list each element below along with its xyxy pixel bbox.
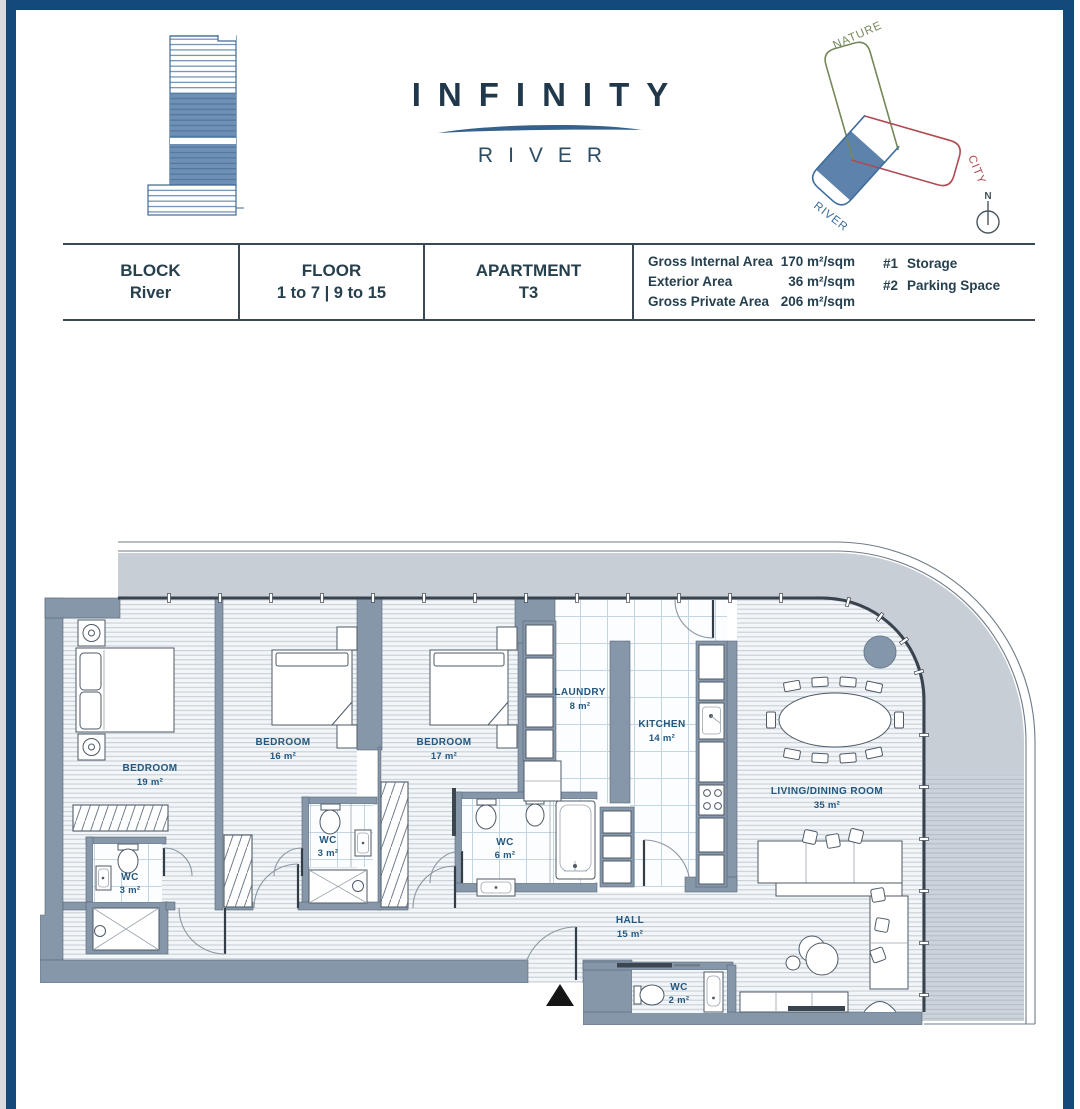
room-area-hall: 15 m² <box>617 929 643 940</box>
area-value: 36 m²/sqm <box>788 272 855 292</box>
column <box>864 636 896 668</box>
info-cell-floor: FLOOR 1 to 7 | 9 to 15 <box>238 245 423 319</box>
room-area-wc1: 3 m² <box>120 885 141 896</box>
room-area-bedroom2: 16 m² <box>270 751 296 762</box>
wing-label-city: CITY <box>965 154 987 186</box>
area-label: Exterior Area <box>648 272 732 292</box>
wc-fixtures <box>93 844 162 950</box>
room-area-kitchen: 14 m² <box>649 733 675 744</box>
laundry-cabinets <box>523 621 561 801</box>
block-label: BLOCK <box>120 261 180 281</box>
north-compass-icon: N <box>977 191 999 233</box>
info-cell-extras: #1Storage #2Parking Space <box>867 245 1035 319</box>
wc-fixtures <box>452 788 595 896</box>
tower-logo-icon <box>140 33 250 218</box>
area-value: 170 m²/sqm <box>781 252 855 272</box>
floor-plan: BEDROOM 19 m² BEDROOM 16 m² BEDROOM 17 m… <box>40 535 1040 1065</box>
info-table: BLOCK River FLOOR 1 to 7 | 9 to 15 APART… <box>63 243 1035 321</box>
room-label-wc-guest: WC <box>670 982 687 993</box>
brand-title: INFINITY <box>290 76 807 114</box>
area-label: Gross Internal Area <box>648 252 773 272</box>
room-area-wc-guest: 2 m² <box>669 995 690 1006</box>
area-row: Gross Internal Area170 m²/sqm <box>648 252 855 272</box>
info-cell-areas: Gross Internal Area170 m²/sqm Exterior A… <box>632 245 867 319</box>
room-label-living: LIVING/DINING ROOM <box>771 786 883 797</box>
extra-num: #2 <box>883 276 898 296</box>
room-label-bedroom1: BEDROOM <box>122 763 177 774</box>
room-area-living: 35 m² <box>814 800 840 811</box>
extra-row: #1Storage <box>883 254 1035 274</box>
area-label: Gross Private Area <box>648 292 769 312</box>
room-label-wc1: WC <box>121 872 138 883</box>
extra-row: #2Parking Space <box>883 276 1035 296</box>
brochure-page: INFINITY RIVER NATURE CITY RIVER N BLOCK <box>0 0 1080 1109</box>
extra-label: Parking Space <box>907 276 1000 296</box>
room-area-laundry: 8 m² <box>570 701 591 712</box>
closet-icon <box>224 835 252 907</box>
brand-swoosh-icon <box>435 123 645 136</box>
wardrobe-icon <box>73 805 168 831</box>
room-label-bedroom2: BEDROOM <box>255 737 310 748</box>
room-label-laundry: LAUNDRY <box>554 687 605 698</box>
room-area-wc-main: 6 m² <box>495 850 516 861</box>
area-row: Gross Private Area206 m²/sqm <box>648 292 855 312</box>
block-value: River <box>130 284 171 303</box>
room-label-wc-main: WC <box>496 837 513 848</box>
frame-border-left <box>6 0 16 1109</box>
frame-border-top <box>6 0 1073 10</box>
closet-icon <box>381 782 408 907</box>
apartment-value: T3 <box>519 284 538 303</box>
room-label-kitchen: KITCHEN <box>638 719 685 730</box>
brand-subtitle: RIVER <box>290 144 805 168</box>
extra-label: Storage <box>907 254 957 274</box>
room-label-bedroom3: BEDROOM <box>416 737 471 748</box>
room-label-wc2: WC <box>319 835 336 846</box>
kitchen-counter <box>696 641 727 887</box>
hall-cabinet <box>600 807 634 887</box>
room-area-bedroom3: 17 m² <box>431 751 457 762</box>
north-label: N <box>984 191 991 202</box>
room-area-wc2: 3 m² <box>318 848 339 859</box>
area-value: 206 m²/sqm <box>781 292 855 312</box>
apartment-label: APARTMENT <box>476 261 581 281</box>
info-cell-apartment: APARTMENT T3 <box>423 245 632 319</box>
extra-num: #1 <box>883 254 898 274</box>
room-area-bedroom1: 19 m² <box>137 777 163 788</box>
room-label-hall: HALL <box>616 915 644 926</box>
floor-label: FLOOR <box>302 261 362 281</box>
area-row: Exterior Area36 m²/sqm <box>648 272 855 292</box>
floor-value: 1 to 7 | 9 to 15 <box>277 284 386 303</box>
frame-border-right <box>1063 0 1074 1109</box>
orientation-diagram: NATURE CITY RIVER N <box>795 15 1025 243</box>
brand-block: INFINITY RIVER <box>290 76 790 168</box>
info-cell-block: BLOCK River <box>63 245 238 319</box>
